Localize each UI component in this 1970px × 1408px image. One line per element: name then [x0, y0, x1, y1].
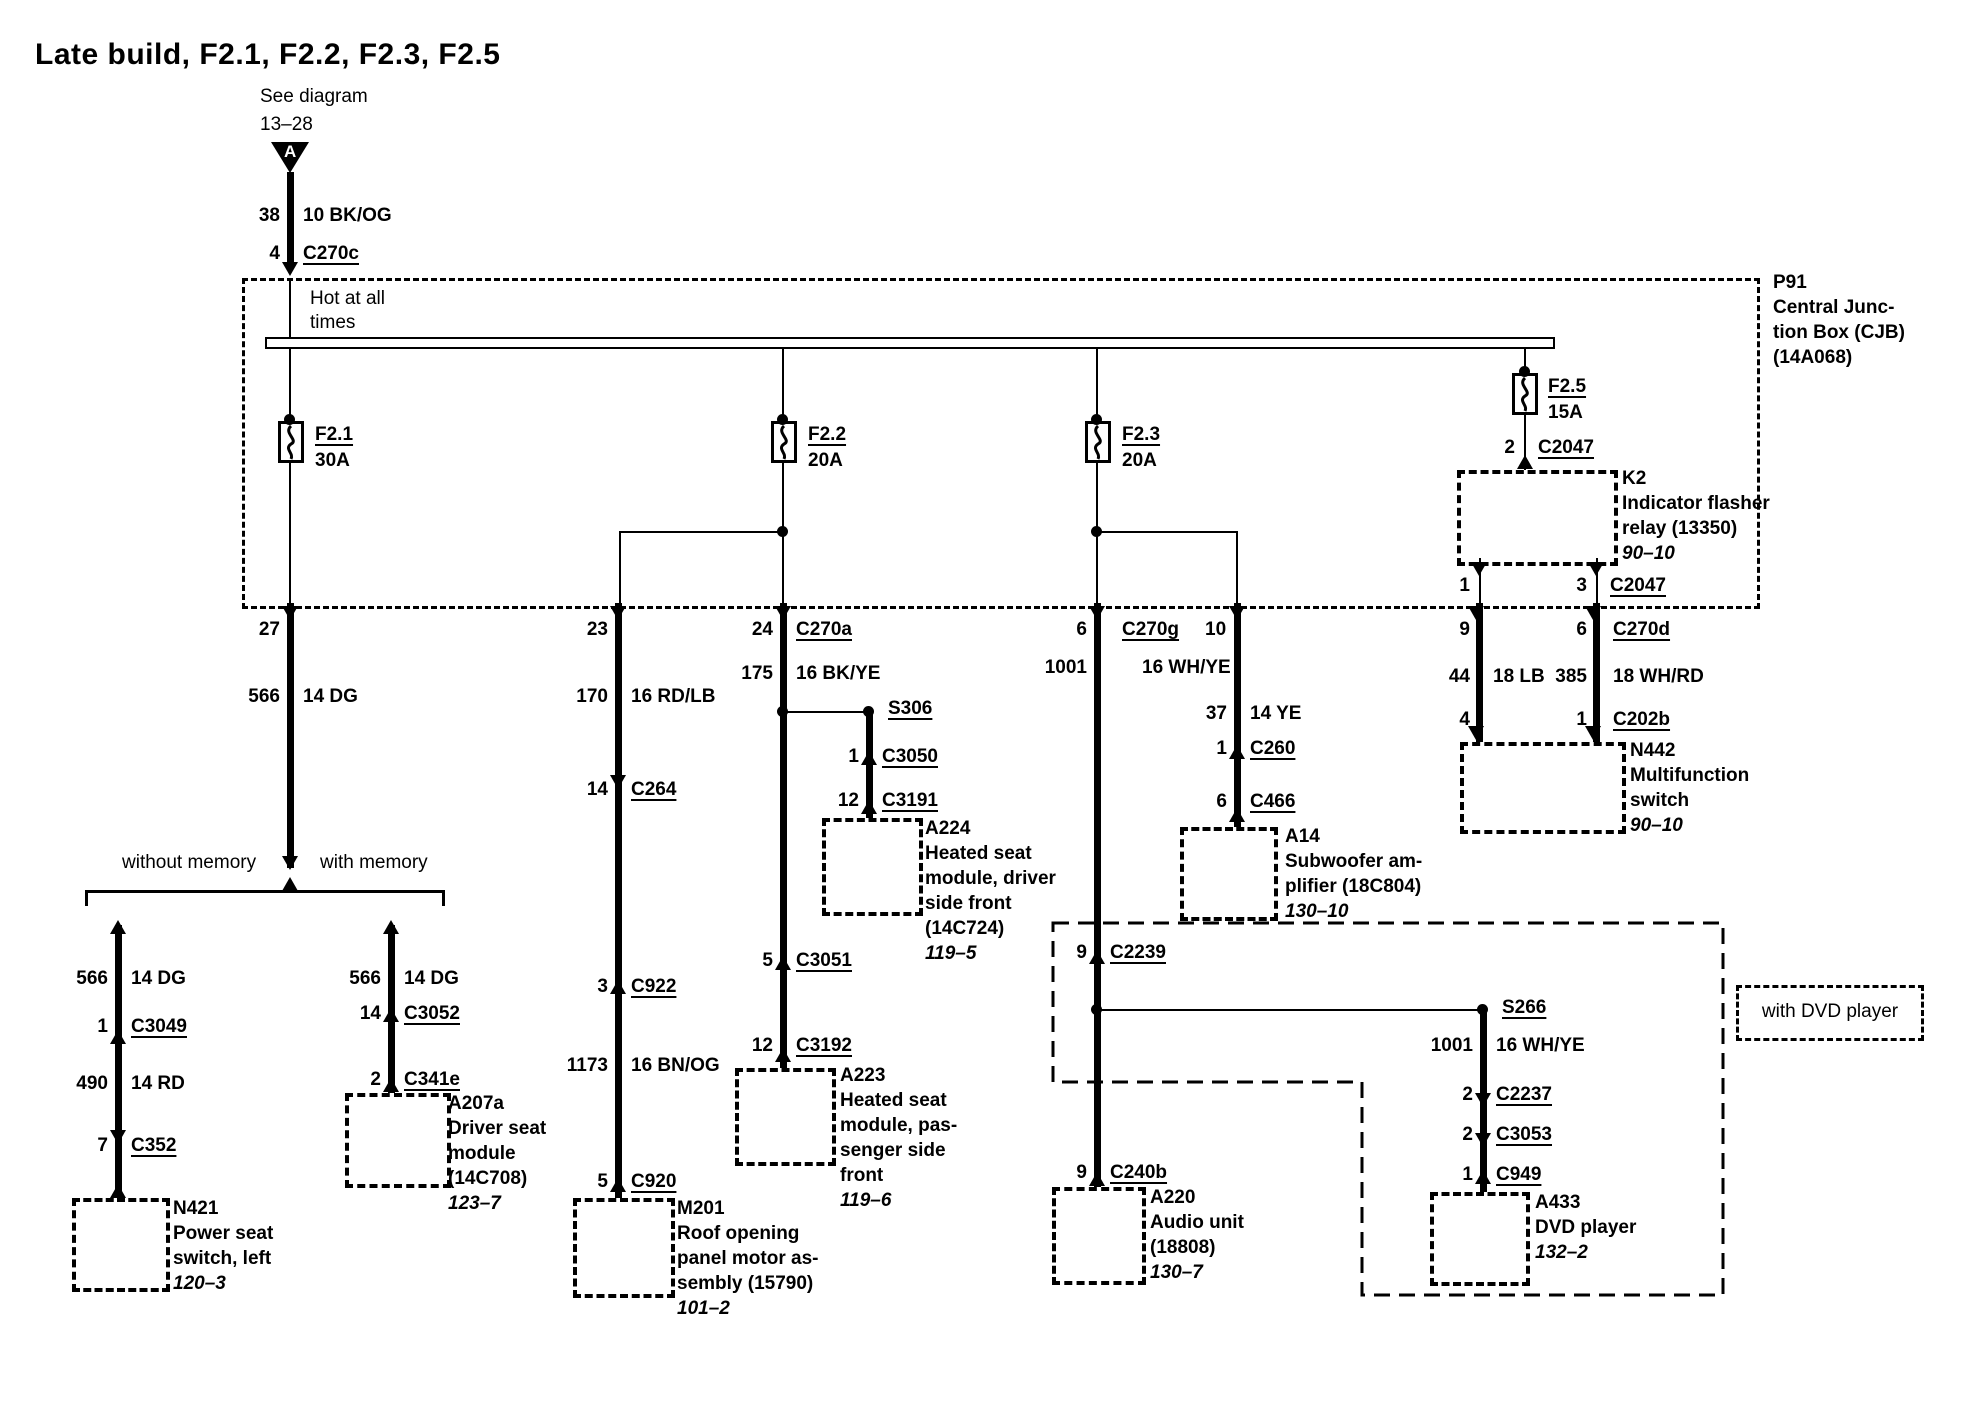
connector-label: C922: [631, 976, 676, 998]
circuit-number: 385: [1555, 666, 1587, 688]
fuse-f22-icon: [771, 421, 797, 469]
fuse-f25-id: F2.5: [1548, 376, 1586, 398]
wire-gauge: 14 RD: [131, 1073, 185, 1095]
circuit-number: 37: [1206, 703, 1227, 725]
wire-segment: [1096, 531, 1238, 533]
k2-label: K2 Indicator flasher relay (13350) 90–10: [1622, 466, 1770, 566]
circuit-number: 175: [741, 663, 773, 685]
a14-box: [1180, 827, 1278, 921]
junction-dot: [1091, 414, 1102, 425]
cjb-label: P91 Central Junc- tion Box (CJB) (14A068…: [1773, 270, 1905, 370]
arrow-icon: [1471, 562, 1487, 576]
arrow-icon: [610, 606, 626, 620]
bracket-hook: [442, 890, 445, 906]
arrow-icon: [1475, 1093, 1491, 1107]
connector-label: C2237: [1496, 1084, 1552, 1106]
wire-gauge: 18 WH/RD: [1613, 666, 1704, 688]
fuse-f23-rating: 20A: [1122, 450, 1157, 472]
see-diagram-page: 13–28: [260, 114, 313, 136]
arrow-icon: [775, 956, 791, 970]
a433-label: A433 DVD player 132–2: [1535, 1190, 1636, 1265]
see-diagram-text: See diagram: [260, 86, 368, 108]
junction-dot: [1091, 526, 1102, 537]
arrow-icon: [1229, 606, 1245, 620]
k2-relay-box: [1457, 470, 1618, 566]
pin-number: 3: [1576, 575, 1587, 597]
circuit-number: 566: [248, 686, 280, 708]
wire-segment: [115, 925, 122, 1198]
connector-label: C3192: [796, 1035, 852, 1057]
wire-segment: [780, 603, 787, 1068]
bracket-line: [85, 890, 445, 893]
wire-segment: [1234, 603, 1241, 827]
pin-number: 4: [269, 243, 280, 265]
splice-label: S306: [888, 698, 932, 720]
wire-gauge: 18 LB: [1493, 666, 1545, 688]
fuse-f23-icon: [1085, 421, 1111, 469]
pin-number: 6: [1576, 619, 1587, 641]
a207a-label: A207a Driver seat module (14C708) 123–7: [448, 1091, 546, 1216]
pin-number: 1: [1462, 1164, 1473, 1186]
arrow-icon: [282, 856, 298, 870]
power-bus-bar: [265, 337, 1555, 349]
arrow-icon: [1229, 808, 1245, 822]
circuit-number: 38: [259, 205, 280, 227]
connector-label: C3191: [882, 790, 938, 812]
wire-segment: [783, 711, 869, 713]
fuse-f22-rating: 20A: [808, 450, 843, 472]
wire-segment: [1476, 603, 1483, 742]
connector-label: C3053: [1496, 1124, 1552, 1146]
arrow-icon: [1588, 562, 1604, 576]
hot-at-all-times-label: Hot at all: [310, 288, 385, 310]
connector-label: C270a: [796, 619, 852, 641]
arrow-icon: [1517, 455, 1533, 469]
circuit-number: 44: [1449, 666, 1470, 688]
connector-label: C920: [631, 1171, 676, 1193]
wire-segment: [615, 603, 622, 1198]
pin-number: 2: [370, 1069, 381, 1091]
wire-segment: [287, 603, 294, 868]
wire-gauge: 16 BK/YE: [796, 663, 880, 685]
arrow-icon: [610, 775, 626, 789]
pin-number: 2: [1462, 1124, 1473, 1146]
pin-number: 9: [1459, 619, 1470, 641]
connector-label: C270g: [1122, 619, 1179, 641]
pin-number: 12: [838, 790, 859, 812]
with-dvd-player-label: with DVD player: [1739, 988, 1921, 1023]
connector-label: C270c: [303, 243, 359, 265]
a433-box: [1430, 1192, 1530, 1286]
with-memory-label: with memory: [320, 852, 428, 874]
connector-label: C341e: [404, 1069, 460, 1091]
with-dvd-player-box: with DVD player: [1736, 985, 1924, 1041]
arrow-icon: [775, 1048, 791, 1062]
pin-number: 7: [97, 1135, 108, 1157]
wire-gauge: 16 WH/YE: [1496, 1035, 1585, 1057]
junction-dot: [777, 706, 788, 717]
connector-label: C3049: [131, 1016, 187, 1038]
pin-number: 5: [762, 950, 773, 972]
wire-segment: [289, 347, 291, 423]
m201-label: M201 Roof opening panel motor as- sembly…: [677, 1196, 818, 1321]
arrow-icon: [383, 920, 399, 934]
arrow-icon: [1585, 606, 1601, 620]
pin-number: 6: [1076, 619, 1087, 641]
wire-segment: [1096, 347, 1098, 423]
connector-label: C3052: [404, 1003, 460, 1025]
pin-number: 3: [597, 976, 608, 998]
wire-segment: [289, 278, 291, 338]
m201-box: [573, 1198, 675, 1298]
circuit-number: 1001: [1045, 657, 1087, 679]
fuse-f23-id: F2.3: [1122, 424, 1160, 446]
fuse-f25-icon: [1512, 373, 1538, 421]
wire-gauge: 10 BK/OG: [303, 205, 392, 227]
arrow-icon: [383, 1078, 399, 1092]
pin-number: 10: [1205, 619, 1226, 641]
cjb-id: P91: [1773, 270, 1905, 295]
circuit-number: 1001: [1431, 1035, 1473, 1057]
arrow-icon: [1468, 606, 1484, 620]
pin-number: 14: [360, 1003, 381, 1025]
connector-label: C352: [131, 1135, 176, 1157]
junction-dot: [777, 414, 788, 425]
pin-number: 23: [587, 619, 608, 641]
pin-number: 6: [1216, 791, 1227, 813]
n421-label: N421 Power seat switch, left 120–3: [173, 1196, 273, 1296]
arrow-icon: [110, 1184, 126, 1198]
hot-at-all-times-label2: times: [310, 312, 355, 334]
wire-gauge: 16 BN/OG: [631, 1055, 720, 1077]
wire-segment: [289, 461, 291, 603]
arrow-icon: [1475, 1133, 1491, 1147]
wire-gauge: 14 DG: [131, 968, 186, 990]
circuit-number: 490: [76, 1073, 108, 1095]
arrow-icon: [861, 800, 877, 814]
pin-number: 24: [752, 619, 773, 641]
n442-box: [1460, 742, 1626, 834]
wire-segment: [619, 531, 783, 533]
off-page-connector-letter: A: [284, 142, 296, 162]
a224-box: [822, 818, 923, 916]
arrow-icon: [775, 606, 791, 620]
arrow-icon: [1089, 606, 1105, 620]
connector-label: C260: [1250, 738, 1295, 760]
circuit-number: 170: [576, 686, 608, 708]
a223-box: [735, 1068, 836, 1166]
wire-segment: [619, 531, 621, 603]
pin-number: 1: [1459, 575, 1470, 597]
a223-label: A223 Heated seat module, pas- senger sid…: [840, 1063, 957, 1213]
connector-label: C264: [631, 779, 676, 801]
wire-gauge: 14 DG: [404, 968, 459, 990]
pin-number: 2: [1504, 437, 1515, 459]
bracket-hook: [85, 890, 88, 906]
pin-number: 27: [259, 619, 280, 641]
n442-label: N442 Multifunction switch 90–10: [1630, 738, 1749, 838]
connector-label: C270d: [1613, 619, 1670, 641]
arrow-icon: [861, 751, 877, 765]
circuit-number: 1173: [567, 1055, 608, 1077]
connector-label: C2047: [1610, 575, 1666, 597]
bracket-pointer-icon: [282, 877, 298, 891]
a224-label: A224 Heated seat module, driver side fro…: [925, 816, 1056, 966]
wire-segment: [1593, 603, 1600, 742]
arrow-icon: [1229, 745, 1245, 759]
arrow-icon: [1585, 726, 1601, 740]
a207a-box: [345, 1093, 451, 1188]
connector-label: C466: [1250, 791, 1295, 813]
wire-segment: [1236, 531, 1238, 603]
wire-gauge: 16 WH/YE: [1142, 657, 1231, 679]
pin-number: 12: [752, 1035, 773, 1057]
pin-number: 1: [1216, 738, 1227, 760]
n421-box: [72, 1198, 170, 1292]
arrow-icon: [282, 606, 298, 620]
pin-number: 1: [848, 746, 859, 768]
fuse-f25-rating: 15A: [1548, 402, 1583, 424]
connector-label: C3051: [796, 950, 852, 972]
pin-number: 1: [97, 1016, 108, 1038]
arrow-icon: [110, 1030, 126, 1044]
wire-segment: [287, 172, 294, 268]
arrow-icon: [383, 1008, 399, 1022]
splice-label: S266: [1502, 997, 1546, 1019]
arrow-icon: [110, 920, 126, 934]
connector-label: C3050: [882, 746, 938, 768]
a14-label: A14 Subwoofer am- plifier (18C804) 130–1…: [1285, 824, 1422, 924]
arrow-icon: [1468, 726, 1484, 740]
circuit-number: 566: [349, 968, 381, 990]
without-memory-label: without memory: [122, 852, 256, 874]
fuse-f21-rating: 30A: [315, 450, 350, 472]
wire-gauge: 14 DG: [303, 686, 358, 708]
fuse-f22-id: F2.2: [808, 424, 846, 446]
connector-label: C949: [1496, 1164, 1541, 1186]
wire-segment: [782, 347, 784, 423]
connector-label: C2047: [1538, 437, 1594, 459]
arrow-icon: [110, 1130, 126, 1144]
junction-dot: [284, 414, 295, 425]
wire-gauge: 14 YE: [1250, 703, 1301, 725]
wire-gauge: 16 RD/LB: [631, 686, 715, 708]
arrow-icon: [282, 262, 298, 276]
connector-label: C202b: [1613, 709, 1670, 731]
arrow-icon: [610, 980, 626, 994]
arrow-icon: [610, 1178, 626, 1192]
junction-dot: [777, 526, 788, 537]
pin-number: 5: [597, 1171, 608, 1193]
pin-number: 2: [1462, 1084, 1473, 1106]
arrow-icon: [1475, 1170, 1491, 1184]
wiring-diagram: Late build, F2.1, F2.2, F2.3, F2.5 See d…: [0, 0, 1970, 1408]
page-title: Late build, F2.1, F2.2, F2.3, F2.5: [35, 38, 500, 72]
junction-dot: [1519, 366, 1530, 377]
fuse-f21-id: F2.1: [315, 424, 353, 446]
circuit-number: 566: [76, 968, 108, 990]
fuse-f21-icon: [278, 421, 304, 469]
pin-number: 14: [587, 779, 608, 801]
